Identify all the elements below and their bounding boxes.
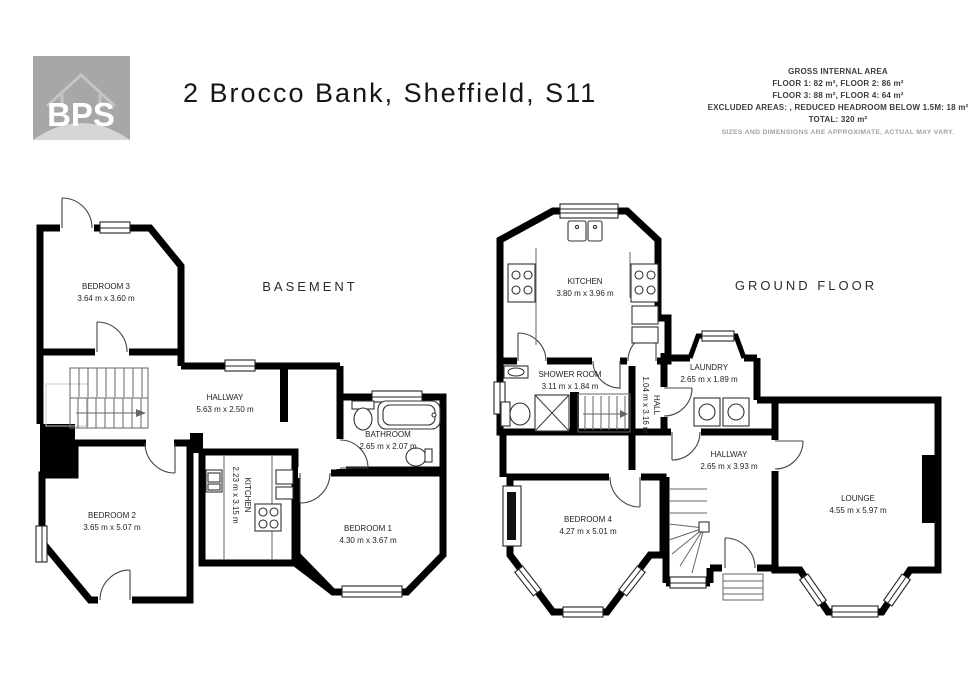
- room-label-bathroom: BATHROOM: [365, 430, 411, 439]
- bps-logo: BPS: [33, 56, 130, 140]
- bedroom4-left-window-bar: [507, 492, 516, 540]
- ground-winder-stairs: [669, 489, 709, 573]
- room-dims-bedroom-1: 4.30 m x 3.67 m: [339, 536, 397, 545]
- ground-floor-plan: GROUND FLOOR KITCHEN 3.80 m x 3.96 m SHO…: [480, 190, 955, 660]
- area-floor12: FLOOR 1: 82 m², FLOOR 2: 86 m²: [700, 78, 976, 90]
- room-dims-hallway-ground: 2.65 m x 3.93 m: [700, 462, 758, 471]
- room-dims-laundry: 2.65 m x 1.89 m: [680, 375, 738, 384]
- area-disclaimer: SIZES AND DIMENSIONS ARE APPROXIMATE, AC…: [700, 128, 976, 138]
- room-label-lounge: LOUNGE: [841, 494, 875, 503]
- basement-stairs: [46, 368, 148, 428]
- room-label-kitchen-ground: KITCHEN: [567, 277, 602, 286]
- ground-stairs: [578, 394, 630, 432]
- room-label-bedroom-2: BEDROOM 2: [88, 511, 137, 520]
- room-dims-bedroom-4: 4.27 m x 5.01 m: [559, 527, 617, 536]
- area-summary: GROSS INTERNAL AREA FLOOR 1: 82 m², FLOO…: [700, 66, 976, 138]
- room-label-kitchen-basement: KITCHEN: [243, 477, 252, 512]
- ground-laundry-fixtures: [694, 398, 749, 426]
- logo-letters: BPS: [47, 96, 115, 133]
- area-heading: GROSS INTERNAL AREA: [700, 66, 976, 78]
- room-dims-bathroom: 2.65 m x 2.07 m: [359, 442, 417, 451]
- ground-floor-title: GROUND FLOOR: [735, 278, 877, 293]
- area-floor34: FLOOR 3: 88 m², FLOOR 4: 64 m²: [700, 90, 976, 102]
- room-label-hall: HALL: [652, 395, 661, 416]
- room-label-bedroom-4: BEDROOM 4: [564, 515, 613, 524]
- room-dims-shower-room: 3.11 m x 1.84 m: [542, 382, 599, 391]
- room-dims-lounge: 4.55 m x 5.97 m: [829, 506, 887, 515]
- floorplan-page: BPS 2 Brocco Bank, Sheffield, S11 GROSS …: [0, 0, 980, 693]
- room-dims-kitchen-ground: 3.80 m x 3.96 m: [556, 289, 614, 298]
- room-label-bedroom-3: BEDROOM 3: [82, 282, 131, 291]
- basement-title: BASEMENT: [262, 279, 358, 294]
- room-label-hallway: HALLWAY: [207, 393, 244, 402]
- room-dims-hallway: 5.63 m x 2.50 m: [196, 405, 254, 414]
- room-label-laundry: LAUNDRY: [690, 363, 729, 372]
- room-dims-hall: 1.04 m x 3.16 m: [641, 376, 650, 434]
- area-excluded: EXCLUDED AREAS: , REDUCED HEADROOM BELOW…: [700, 102, 976, 114]
- area-total: TOTAL: 320 m²: [700, 114, 976, 126]
- room-dims-bedroom-2: 3.65 m x 5.07 m: [83, 523, 141, 532]
- room-dims-bedroom-3: 3.64 m x 3.60 m: [77, 294, 135, 303]
- room-label-bedroom-1: BEDROOM 1: [344, 524, 393, 533]
- page-title: 2 Brocco Bank, Sheffield, S11: [183, 78, 597, 109]
- room-label-hallway-ground: HALLWAY: [711, 450, 748, 459]
- room-label-shower-room: SHOWER ROOM: [538, 370, 601, 379]
- basement-plan: BASEMENT BEDROOM 3 3.64 m x 3.60 m HALLW…: [20, 180, 470, 650]
- room-dims-kitchen-basement: 2.23 m x 3.15 m: [231, 466, 240, 524]
